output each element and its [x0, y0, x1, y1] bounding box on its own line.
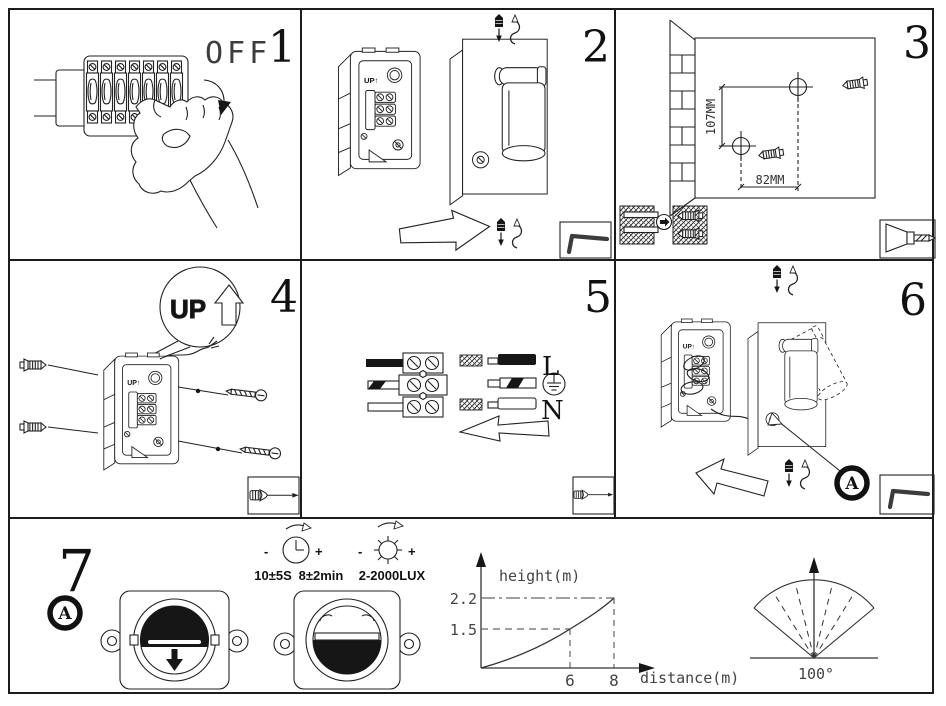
screw-icon: [226, 386, 268, 402]
insert-arrow-icon: [460, 416, 549, 441]
y-tick-2-2: 2.2: [450, 590, 477, 608]
lamp-illustration: [779, 339, 818, 410]
y-tick-1-5: 1.5: [450, 621, 477, 639]
screwdriver-icon: [250, 490, 299, 501]
up-arrow-icon: [215, 285, 243, 325]
mains-cable-illustration: [160, 337, 219, 359]
step-number: 1: [268, 22, 296, 73]
step-5-panel: 5 L: [302, 261, 614, 517]
wall-plug-icon: [842, 77, 868, 92]
terminal-block-illustration: [366, 353, 447, 417]
assemble-arrow-icon: [696, 459, 768, 496]
knob-lux-adjust: [274, 591, 420, 689]
step-number: 4: [270, 272, 298, 323]
detection-angle-fan: 100°: [750, 557, 878, 683]
set-screw-icon: [785, 459, 810, 489]
svg-text:107MM: 107MM: [704, 99, 718, 135]
lamp-illustration: [495, 67, 546, 161]
earth-symbol-icon: [543, 373, 565, 395]
svg-text:82MM: 82MM: [756, 173, 785, 187]
timer-icon: - +: [264, 523, 323, 563]
height-distance-chart: height(m) distance(m) 2.2 1.5 6 8: [450, 552, 739, 690]
wall-plug-icon: [20, 421, 46, 433]
svg-text:-: -: [264, 544, 268, 559]
mounting-box-illustration: [339, 48, 421, 176]
x-axis-label: distance(m): [640, 669, 739, 687]
mounting-box-illustration: [104, 353, 179, 470]
y-axis-label: height(m): [499, 567, 580, 585]
svg-text:+: +: [408, 544, 416, 559]
step-number: 3: [903, 18, 931, 69]
step-number: 7: [58, 537, 95, 605]
screw-icon: [240, 444, 282, 460]
sun-icon: - +: [358, 521, 416, 564]
drill-bit-icon: [886, 224, 935, 252]
screwdriver-icon: [574, 490, 613, 499]
wall-plug-icon: [758, 147, 784, 162]
step-number: 5: [584, 272, 612, 323]
step-number: 2: [582, 22, 610, 73]
manual-page: OFF 1: [0, 0, 946, 706]
time-delay-spec: 8±2min: [299, 568, 344, 583]
x-tick-8: 8: [609, 671, 619, 690]
up-callout: UP: [148, 267, 243, 360]
step-7-panel: 7 A: [10, 519, 936, 696]
wire-prep-detail: L N: [460, 352, 565, 426]
step-1-panel: OFF 1: [10, 10, 300, 259]
lux-spec: 2-2000LUX: [359, 568, 426, 583]
knob-time-adjust: [101, 591, 248, 689]
allen-key-icon: [569, 236, 607, 252]
detail-a-badge: A: [50, 598, 80, 628]
angle-label: 100°: [798, 665, 834, 683]
drill-insert-detail: [620, 206, 707, 244]
up-label: UP: [170, 294, 206, 324]
tool-inset: [880, 475, 934, 514]
neutral-wire: [368, 403, 404, 411]
live-wire: [366, 359, 404, 367]
set-screw-icon: [497, 218, 522, 248]
mounting-box-illustration: [661, 319, 730, 427]
step-2-panel: 2: [302, 10, 614, 259]
step-3-panel: 3: [616, 10, 936, 259]
svg-text:-: -: [358, 544, 362, 559]
step-4-panel: 4 UP: [10, 261, 300, 517]
wall-plug-icon: [20, 359, 46, 371]
assemble-arrow-icon: [398, 207, 492, 256]
step-number: 6: [899, 275, 927, 326]
tool-inset: [880, 220, 935, 258]
time-on-spec: 10±5S: [254, 568, 292, 583]
off-label: OFF: [205, 36, 271, 71]
tool-inset: [573, 477, 614, 514]
step-6-panel: 6 A: [616, 261, 936, 517]
tool-inset: [248, 477, 299, 514]
svg-text:A: A: [844, 474, 859, 494]
set-screw-icon: [773, 265, 798, 295]
wall-plate-illustration: [450, 39, 547, 205]
allen-key-icon: [890, 491, 928, 507]
tool-inset: [560, 222, 611, 258]
svg-text:A: A: [57, 604, 72, 624]
hand-icon: [131, 97, 258, 228]
x-tick-6: 6: [565, 671, 575, 690]
svg-text:+: +: [315, 544, 323, 559]
